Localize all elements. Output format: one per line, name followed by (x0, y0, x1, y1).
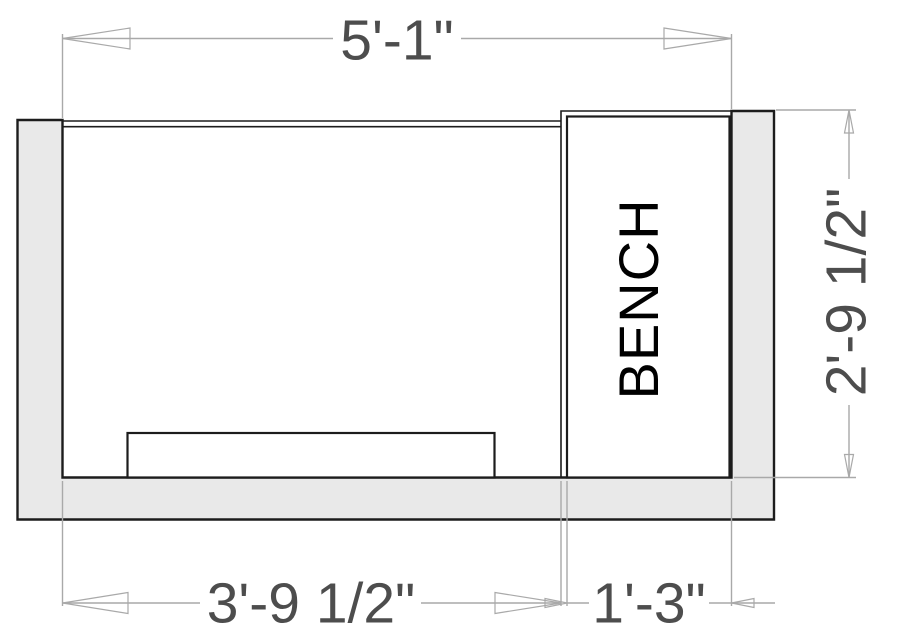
bench-label: BENCH (611, 198, 667, 399)
floor-plan-drawing (0, 0, 900, 643)
shower-top-edge (63, 121, 562, 127)
dimension-label-right: 2'-9 1/2" (819, 188, 876, 397)
dimension-label-top: 5'-1" (340, 13, 454, 70)
curb (128, 433, 495, 478)
floor-plan-canvas: 5'-1" 3'-9 1/2" 1'-3" 2'-9 1/2" BENCH (0, 0, 900, 643)
dimension-label-bottom-right: 1'-3" (592, 576, 706, 633)
dimension-label-bottom-left: 3'-9 1/2" (207, 576, 416, 633)
